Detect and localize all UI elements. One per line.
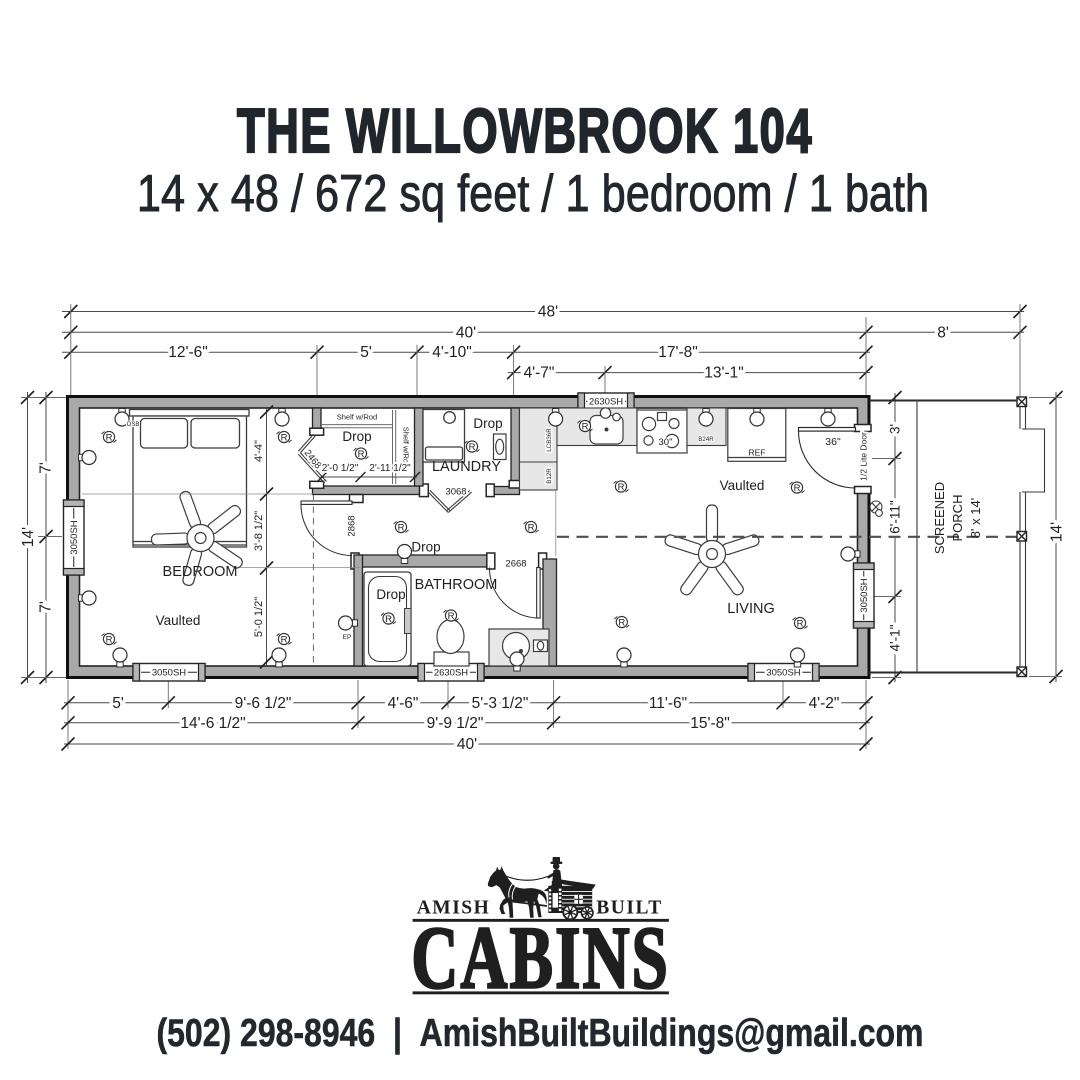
svg-text:R: R xyxy=(358,449,365,460)
svg-text:3050SH: 3050SH xyxy=(69,520,80,554)
svg-text:7': 7' xyxy=(38,601,55,613)
svg-text:LCB36R: LCB36R xyxy=(546,428,553,452)
svg-text:PORCH: PORCH xyxy=(950,495,965,542)
svg-text:R: R xyxy=(794,483,801,494)
svg-text:BEDROOM: BEDROOM xyxy=(163,564,238,580)
svg-text:2868: 2868 xyxy=(347,515,358,536)
svg-text:R: R xyxy=(398,522,405,533)
svg-text:R: R xyxy=(469,442,476,453)
svg-text:3068: 3068 xyxy=(445,487,466,498)
svg-text:R: R xyxy=(528,522,535,533)
svg-text:30": 30" xyxy=(659,437,673,448)
svg-text:B12R: B12R xyxy=(546,468,553,484)
svg-text:2630SH: 2630SH xyxy=(589,396,623,407)
svg-text:Drop: Drop xyxy=(342,429,371,444)
svg-text:R: R xyxy=(582,421,589,432)
svg-text:Vaulted: Vaulted xyxy=(156,613,201,628)
svg-text:5'-0 1/2": 5'-0 1/2" xyxy=(253,597,265,637)
svg-text:R: R xyxy=(106,432,113,443)
svg-text:9'-9 1/2": 9'-9 1/2" xyxy=(427,715,484,732)
svg-text:36": 36" xyxy=(825,436,841,448)
svg-text:Drop: Drop xyxy=(411,540,440,555)
svg-text:1/2 Lite Door: 1/2 Lite Door xyxy=(859,432,869,481)
svg-text:3': 3' xyxy=(888,424,903,434)
svg-text:14': 14' xyxy=(20,527,37,547)
svg-text:Drop: Drop xyxy=(376,587,405,602)
svg-text:R: R xyxy=(106,634,113,645)
svg-text:SCREENED: SCREENED xyxy=(932,482,947,554)
svg-text:Shelf w/Rod: Shelf w/Rod xyxy=(402,427,411,467)
svg-text:R: R xyxy=(618,482,625,493)
svg-text:3050SH: 3050SH xyxy=(152,667,186,678)
svg-text:8' x 14': 8' x 14' xyxy=(968,498,983,538)
svg-text:Vaulted: Vaulted xyxy=(720,478,765,493)
svg-text:R: R xyxy=(448,611,455,622)
svg-text:4'-6": 4'-6" xyxy=(388,695,419,712)
svg-text:4'-1": 4'-1" xyxy=(888,624,903,651)
svg-text:40': 40' xyxy=(456,324,476,341)
svg-text:4'-10": 4'-10" xyxy=(432,344,471,361)
svg-text:R: R xyxy=(385,614,392,625)
svg-text:LAUNDRY: LAUNDRY xyxy=(432,459,501,475)
svg-text:OSB: OSB xyxy=(127,422,140,428)
svg-text:7': 7' xyxy=(38,462,55,474)
svg-text:3'-8 1/2": 3'-8 1/2" xyxy=(253,511,265,551)
svg-text:8': 8' xyxy=(937,324,949,341)
svg-text:2'-11 1/2": 2'-11 1/2" xyxy=(369,463,411,474)
svg-text:REF: REF xyxy=(749,448,766,458)
svg-text:15'-8": 15'-8" xyxy=(690,715,729,732)
svg-text:2668: 2668 xyxy=(505,559,526,570)
svg-text:5': 5' xyxy=(112,695,124,712)
svg-text:R: R xyxy=(797,618,804,629)
svg-text:B24R: B24R xyxy=(698,436,714,443)
svg-text:LIVING: LIVING xyxy=(727,601,775,617)
svg-text:11'-6": 11'-6" xyxy=(649,695,687,712)
svg-text:3050SH: 3050SH xyxy=(766,667,800,678)
svg-text:EP: EP xyxy=(343,634,352,641)
svg-text:48': 48' xyxy=(538,304,558,321)
svg-text:12'-6": 12'-6" xyxy=(168,344,207,361)
svg-text:Drop: Drop xyxy=(473,416,502,431)
svg-text:Shelf w/Rod: Shelf w/Rod xyxy=(337,413,377,422)
svg-text:17'-8": 17'-8" xyxy=(658,344,697,361)
svg-text:R: R xyxy=(281,634,288,645)
svg-text:13'-1": 13'-1" xyxy=(704,365,743,382)
svg-text:5'-3 1/2": 5'-3 1/2" xyxy=(472,695,529,712)
svg-text:9'-6 1/2": 9'-6 1/2" xyxy=(235,695,292,712)
svg-text:4'-2": 4'-2" xyxy=(809,695,840,712)
svg-text:6'-11": 6'-11" xyxy=(888,500,903,534)
svg-text:BATHROOM: BATHROOM xyxy=(415,577,498,593)
svg-text:14'-6 1/2": 14'-6 1/2" xyxy=(180,715,245,732)
svg-text:4'-4": 4'-4" xyxy=(253,440,265,462)
svg-text:5': 5' xyxy=(360,344,372,361)
svg-text:2630SH: 2630SH xyxy=(434,667,468,678)
svg-text:4'-7": 4'-7" xyxy=(524,365,555,382)
svg-text:40': 40' xyxy=(457,736,477,753)
svg-text:R: R xyxy=(618,617,625,628)
svg-text:14': 14' xyxy=(1049,522,1066,542)
svg-text:R: R xyxy=(281,432,288,443)
svg-text:3050SH: 3050SH xyxy=(859,578,870,612)
svg-text:2'-0 1/2": 2'-0 1/2" xyxy=(322,463,359,474)
